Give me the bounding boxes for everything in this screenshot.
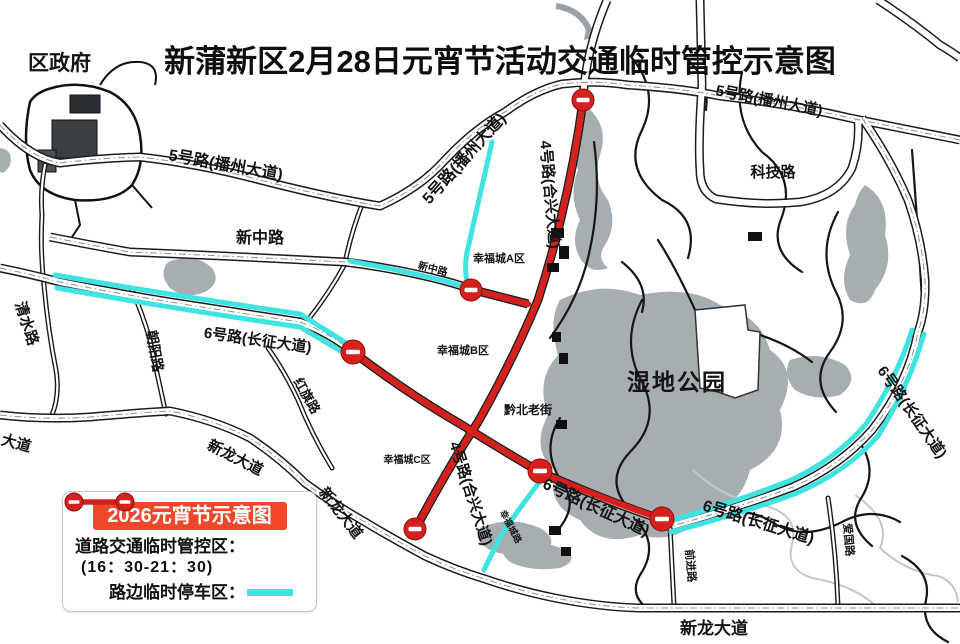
qianjin-road-label: 前进路 [683, 549, 700, 584]
xingfucheng-c-label: 幸福城C区 [383, 453, 430, 466]
road4-label-north: 4号路(合兴大道) [536, 140, 563, 250]
xinlong-avenue-label-bottom: 新龙大道 [680, 618, 748, 638]
xinlong-avenue-label-diag2: 新龙大道 [315, 484, 366, 542]
wetland-park-label: 湿地公园 [627, 369, 727, 395]
legend-control-time: (16：30-21：30) [63, 557, 316, 578]
control-road-symbol [63, 492, 137, 512]
no-entry-icon [404, 518, 426, 540]
page-title: 新蒲新区2月28日元宵节活动交通临时管控示意图 [60, 36, 940, 81]
parking-line-symbol [247, 589, 293, 596]
xingfucheng-b-label: 幸福城B区 [437, 343, 489, 357]
xinzhong-road-label: 新中路 [236, 228, 285, 247]
aiguo-road-label: 爱国路 [841, 523, 858, 558]
no-entry-icon [650, 507, 674, 531]
road5-label-east: 5号路(播州大道) [714, 81, 824, 119]
legend-box: 2026元宵节示意图 道路交通临时管控区： (16：30-21：30) 路边临时… [62, 491, 317, 612]
road5-label-west: 5号路(播州大道) [167, 145, 284, 184]
legend-parking-label: 路边临时停车区： [109, 582, 245, 603]
no-entry-icon [572, 89, 594, 111]
qingshui-road-label: 清水路 [11, 299, 42, 348]
qianbei-old-street-label: 黔北老街 [504, 402, 552, 417]
no-entry-icon [116, 493, 134, 511]
chaoyang-road-label: 朝阳路 [143, 329, 166, 374]
road4-label-south: 4号路(合兴大道) [445, 439, 496, 548]
xinlong-avenue-label-partial: 大道 [0, 431, 33, 456]
no-entry-icon [65, 493, 83, 511]
traffic-control-map-page: 区政府 5号路(播州大道) 5号路(播州大道) 5号路(播州大道) 科技路 新中… [0, 0, 960, 644]
legend-control-label: 道路交通临时管控区： [75, 536, 245, 557]
xingfucheng-a-label: 幸福城A区 [473, 251, 525, 265]
no-entry-icon [460, 279, 482, 301]
no-entry-icon [341, 340, 365, 364]
keji-road-label: 科技路 [750, 163, 796, 181]
road5-label-mid: 5号路(播州大道) [418, 109, 509, 208]
district-government-complex [26, 62, 156, 240]
